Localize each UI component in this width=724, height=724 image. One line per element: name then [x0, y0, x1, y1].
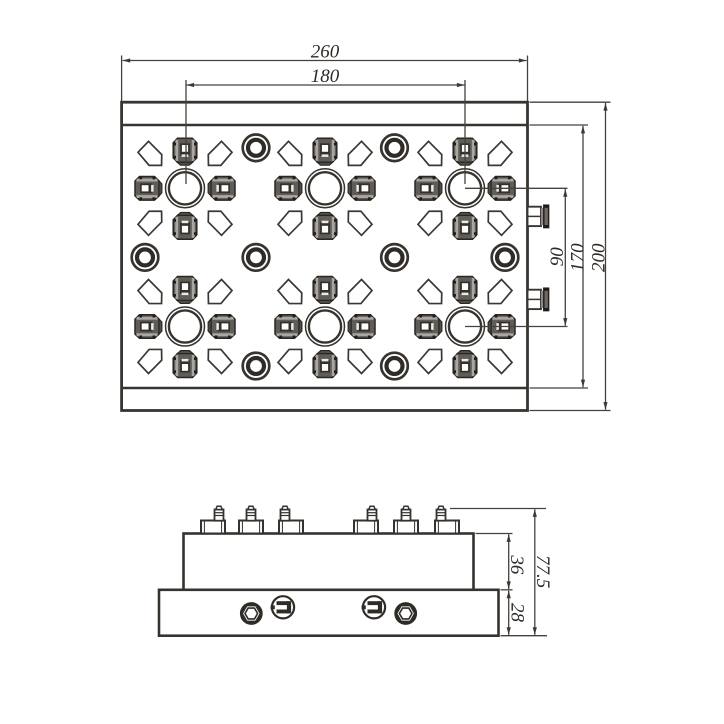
svg-text:77.5: 77.5	[532, 555, 553, 588]
svg-text:36: 36	[506, 554, 527, 575]
svg-text:180: 180	[311, 66, 340, 87]
svg-text:200: 200	[589, 243, 610, 272]
svg-text:170: 170	[568, 243, 589, 272]
svg-text:90: 90	[547, 247, 568, 267]
svg-text:260: 260	[311, 42, 340, 63]
svg-text:28: 28	[507, 603, 528, 623]
